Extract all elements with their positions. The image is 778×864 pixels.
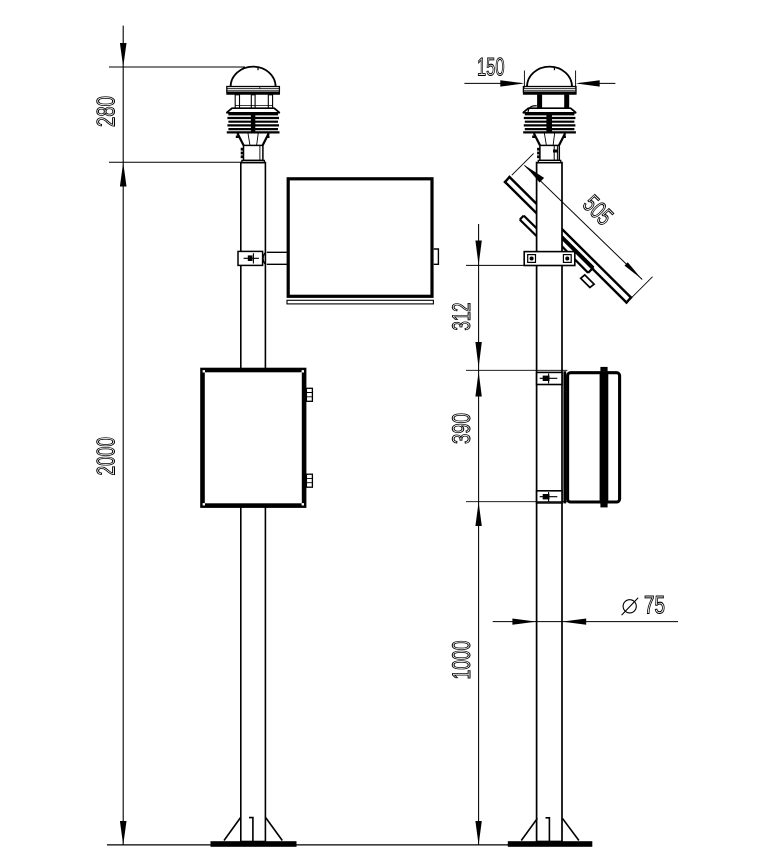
svg-text:150: 150 — [477, 53, 505, 81]
svg-text:280: 280 — [92, 96, 120, 127]
svg-text:75: 75 — [644, 591, 665, 619]
svg-text:390: 390 — [448, 413, 476, 444]
svg-text:1000: 1000 — [448, 641, 476, 680]
svg-text:2000: 2000 — [92, 437, 120, 476]
svg-text:505: 505 — [577, 190, 618, 231]
svg-text:312: 312 — [448, 303, 476, 331]
